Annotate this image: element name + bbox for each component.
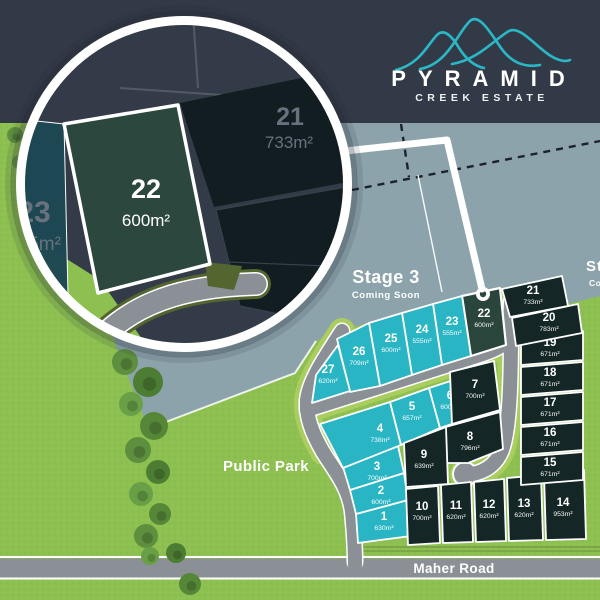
lot-7-number: 7 <box>472 379 478 391</box>
lot-8-number: 8 <box>467 431 474 443</box>
lot-1-number: 1 <box>381 511 388 523</box>
tree-shade <box>142 533 153 544</box>
lot-9-number: 9 <box>421 449 427 461</box>
lot-27-number: 27 <box>322 364 335 376</box>
lot-3-number: 3 <box>374 461 380 473</box>
brand-name: PYRAMID <box>391 66 576 91</box>
lot-10-area: 700m² <box>412 515 432 522</box>
lot-14-area: 953m² <box>553 511 573 518</box>
lot-22-area: 600m² <box>474 322 494 329</box>
lot-18-area: 671m² <box>540 381 560 388</box>
lot-26-number: 26 <box>353 346 366 358</box>
lot-4-number: 4 <box>377 423 384 435</box>
estate-masterplan: Stage Coming 1630m²2600m²3700m²4738m²565… <box>0 0 600 600</box>
maher-road-label: Maher Road <box>413 561 494 576</box>
lot-5-area: 657m² <box>402 415 422 422</box>
lot-21-number: 21 <box>527 285 540 297</box>
tree-shade <box>157 511 167 521</box>
lot-9-area: 639m² <box>414 463 434 470</box>
tree-shade <box>121 358 133 370</box>
lot-23-area: 555m² <box>442 330 462 337</box>
stage-edge-label: Stage <box>586 258 600 275</box>
lot-11-area: 620m² <box>446 514 466 521</box>
lot-19-area: 671m² <box>540 351 560 358</box>
lot-16-number: 16 <box>544 427 557 439</box>
lot-22-number: 22 <box>478 308 491 320</box>
lot-18-number: 18 <box>544 367 557 379</box>
lot-13-area: 620m² <box>514 512 534 519</box>
lot-25-area: 600m² <box>381 347 401 354</box>
magnified-lot-21-area: 733m² <box>265 133 314 152</box>
lot-3-area: 700m² <box>367 475 387 482</box>
lot-11-number: 11 <box>450 500 463 512</box>
brand-tagline: CREEK ESTATE <box>415 92 549 104</box>
lot-20-area: 783m² <box>539 326 559 333</box>
stage3-sublabel: Coming Soon <box>352 290 420 301</box>
lot-12-number: 12 <box>483 499 496 511</box>
tree-shade <box>134 446 146 458</box>
stage3-label: Stage 3 <box>352 267 420 287</box>
lot-1-area: 630m² <box>374 525 394 532</box>
lot-2-area: 600m² <box>371 499 391 506</box>
tree-shade <box>143 377 157 391</box>
magnified-lot-22-area: 600m² <box>122 211 171 230</box>
magnified-lot-22-number: 22 <box>131 174 161 204</box>
lot-23-number: 23 <box>446 316 459 328</box>
lot-11[interactable] <box>441 482 473 543</box>
lot-25-number: 25 <box>385 333 398 345</box>
lot-24-area: 555m² <box>412 338 432 345</box>
lot-21-area: 733m² <box>523 299 543 306</box>
tree-shade <box>149 422 162 435</box>
maher-road <box>0 559 600 578</box>
lot-7-area: 700m² <box>465 393 485 400</box>
lot-16-area: 671m² <box>540 441 560 448</box>
lot-10-number: 10 <box>416 501 429 513</box>
lot-26-area: 709m² <box>349 360 369 367</box>
lot-2-number: 2 <box>378 485 384 497</box>
lot-27-area: 620m² <box>318 378 338 385</box>
lot-17-area: 671m² <box>540 411 560 418</box>
lot-14-number: 14 <box>557 497 570 509</box>
magnified-lot-21-number: 21 <box>276 103 304 131</box>
tree-shade <box>187 581 197 591</box>
lot-4-area: 738m² <box>370 437 390 444</box>
lot-24-number: 24 <box>416 324 429 336</box>
tree-shade <box>173 551 182 560</box>
lot-5-number: 5 <box>409 401 416 413</box>
lot-15-number: 15 <box>544 457 557 469</box>
tree-shade <box>147 554 155 562</box>
lot-13-number: 13 <box>518 498 531 510</box>
stage-edge-sublabel: Coming <box>589 278 600 288</box>
lot-12-area: 620m² <box>479 513 499 520</box>
tree-shade <box>137 491 148 502</box>
lot-17-number: 17 <box>544 397 557 409</box>
tree-shade <box>154 469 165 480</box>
lot-15-area: 671m² <box>540 471 560 478</box>
lot-8-area: 796m² <box>460 445 480 452</box>
tree-shade <box>127 401 138 412</box>
lot-20-number: 20 <box>543 312 556 324</box>
public-park-label: Public Park <box>223 458 309 475</box>
